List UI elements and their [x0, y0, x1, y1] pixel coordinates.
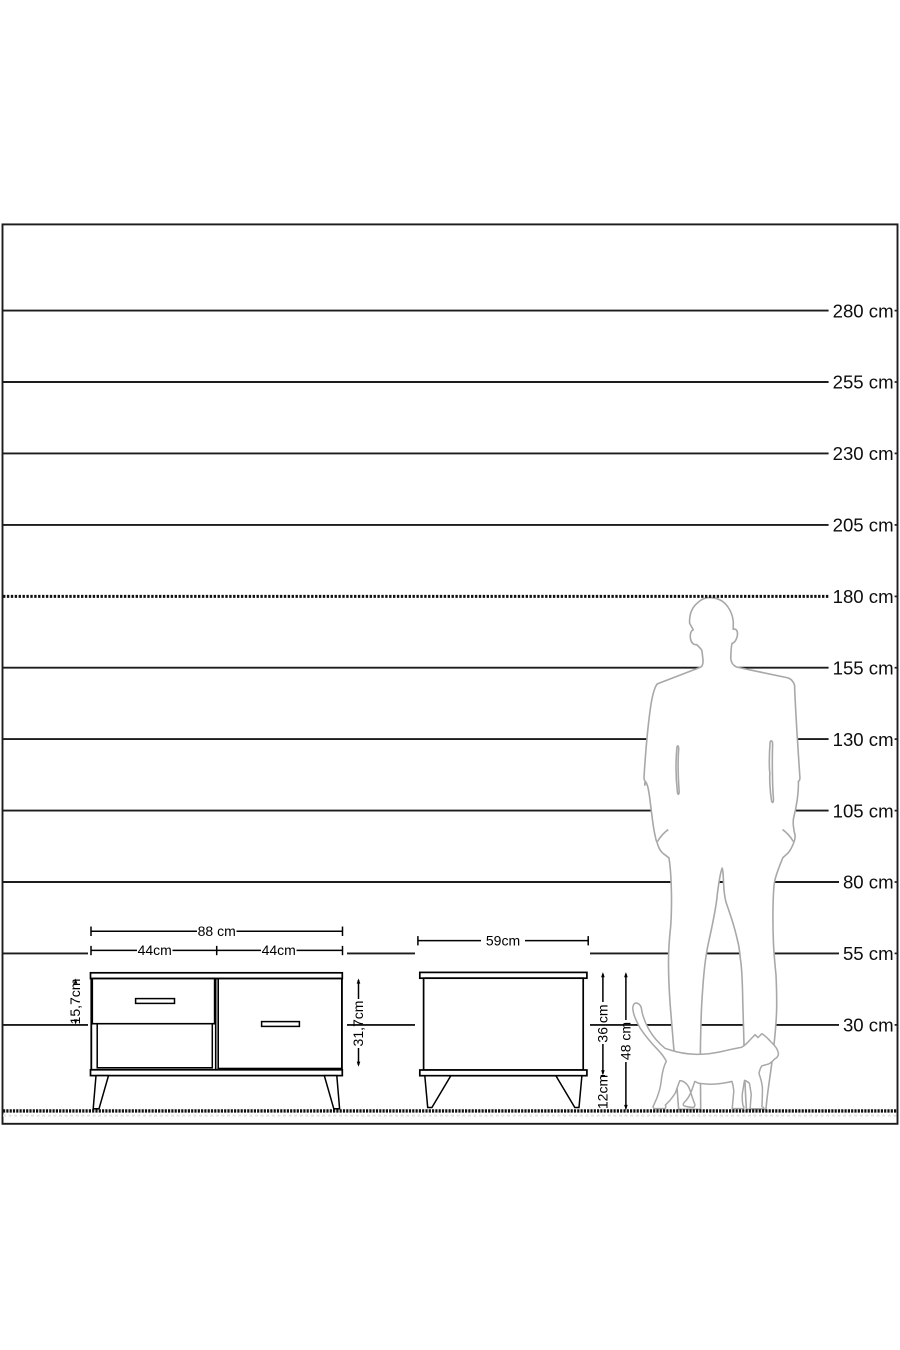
svg-text:30 cm: 30 cm [843, 1015, 894, 1036]
svg-text:105 cm: 105 cm [833, 800, 894, 821]
svg-text:59cm: 59cm [486, 932, 520, 948]
svg-text:88 cm: 88 cm [198, 923, 236, 939]
svg-text:155 cm: 155 cm [833, 657, 894, 678]
svg-text:280 cm: 280 cm [833, 300, 894, 321]
svg-text:12cm: 12cm [595, 1075, 611, 1109]
svg-text:36 cm: 36 cm [595, 1004, 611, 1042]
svg-text:205 cm: 205 cm [833, 515, 894, 536]
svg-text:15,7cm: 15,7cm [67, 979, 83, 1025]
svg-text:44cm: 44cm [262, 942, 296, 958]
svg-text:48 cm: 48 cm [618, 1022, 634, 1060]
svg-text:44cm: 44cm [138, 942, 172, 958]
svg-text:31,7cm: 31,7cm [350, 1001, 366, 1047]
svg-text:180 cm: 180 cm [833, 586, 894, 607]
svg-text:55 cm: 55 cm [843, 943, 894, 964]
svg-text:130 cm: 130 cm [833, 729, 894, 750]
svg-text:255 cm: 255 cm [833, 372, 894, 393]
svg-text:230 cm: 230 cm [833, 443, 894, 464]
svg-text:80 cm: 80 cm [843, 872, 894, 893]
